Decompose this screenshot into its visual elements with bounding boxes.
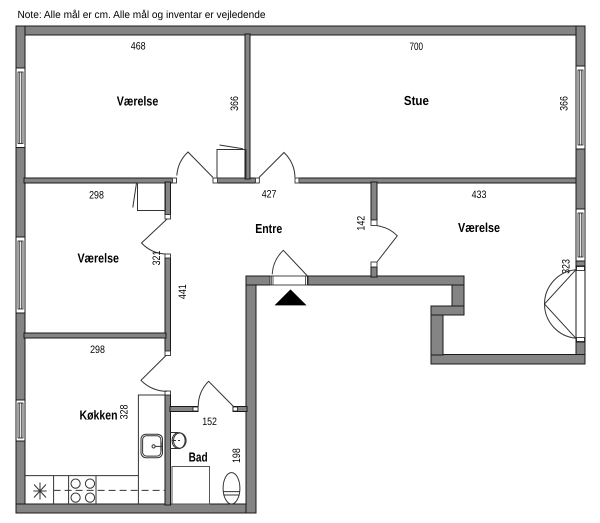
svg-text:298: 298 bbox=[90, 344, 105, 356]
svg-text:Værelse: Værelse bbox=[117, 94, 159, 109]
svg-text:700: 700 bbox=[409, 41, 423, 53]
svg-text:198: 198 bbox=[231, 448, 243, 463]
svg-text:Note: Alle mål er cm. Alle mål: Note: Alle mål er cm. Alle mål og invent… bbox=[18, 9, 266, 21]
svg-text:468: 468 bbox=[131, 41, 146, 53]
svg-text:298: 298 bbox=[89, 190, 104, 202]
svg-text:Værelse: Værelse bbox=[458, 220, 500, 235]
svg-text:Entre: Entre bbox=[255, 221, 282, 236]
svg-text:Køkken: Køkken bbox=[80, 408, 118, 423]
svg-text:Stue: Stue bbox=[404, 93, 429, 108]
svg-text:152: 152 bbox=[202, 416, 217, 428]
svg-text:Bad: Bad bbox=[189, 450, 208, 465]
svg-text:366: 366 bbox=[229, 96, 241, 111]
svg-text:323: 323 bbox=[561, 259, 573, 274]
svg-text:441: 441 bbox=[177, 284, 189, 299]
svg-text:433: 433 bbox=[472, 189, 487, 201]
svg-text:142: 142 bbox=[355, 216, 367, 231]
svg-text:328: 328 bbox=[118, 405, 130, 420]
svg-text:427: 427 bbox=[262, 189, 277, 201]
svg-text:Værelse: Værelse bbox=[77, 251, 119, 266]
svg-text:366: 366 bbox=[559, 96, 571, 111]
svg-text:321: 321 bbox=[151, 251, 163, 266]
